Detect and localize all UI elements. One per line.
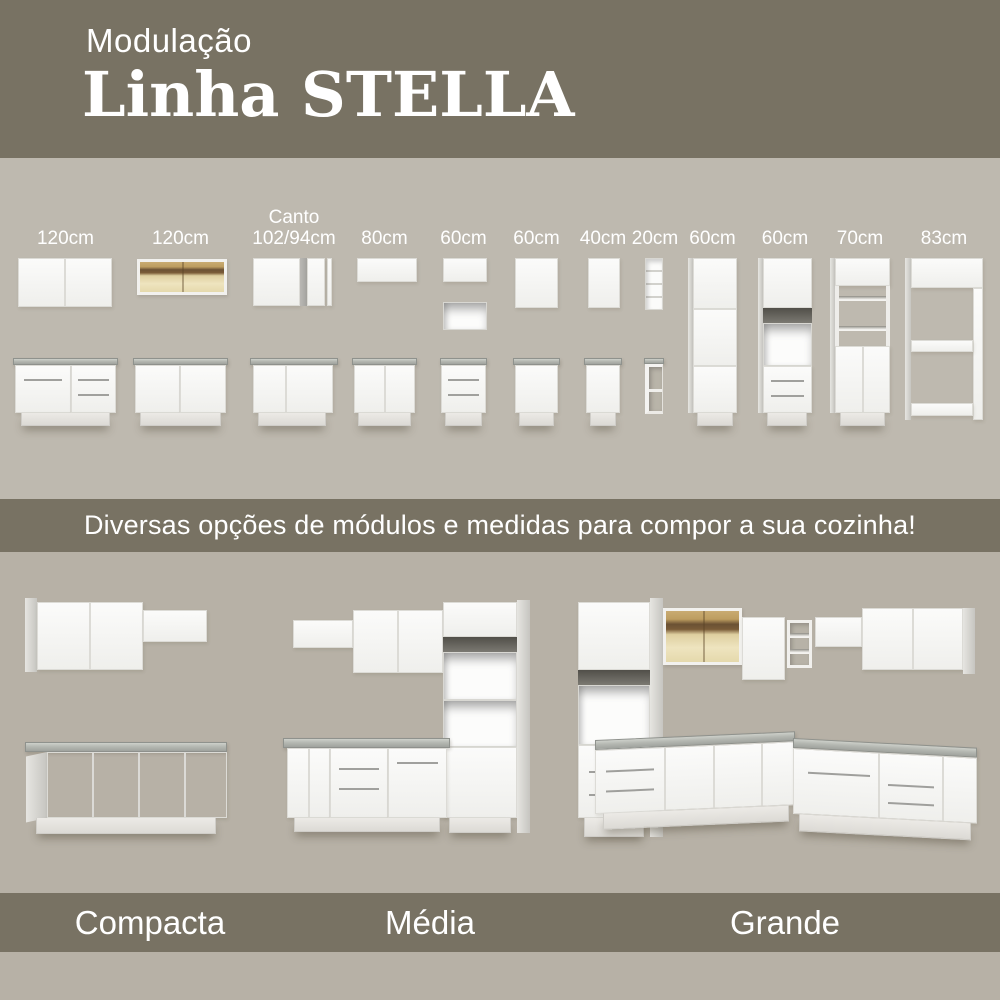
- module-size-label: 83cm: [921, 228, 967, 249]
- filler-strip: [327, 258, 332, 306]
- open-shelf-unit: [787, 620, 812, 668]
- poster: Modulação Linha STELLA 120cm 120cm Canto: [0, 0, 1000, 1000]
- drawer-handle: [808, 772, 870, 777]
- module-size-label: 70cm: [837, 228, 883, 249]
- module-size-label: 120cm: [152, 228, 209, 249]
- wall-cabinet: [862, 608, 963, 670]
- base-run-right: [793, 738, 977, 858]
- plinth: [767, 413, 807, 426]
- module-size-label: 60cm: [689, 228, 735, 249]
- corner-wall-door: [253, 258, 300, 306]
- shelf: [911, 340, 973, 352]
- shelf: [839, 296, 886, 301]
- base-cabinets: [595, 741, 795, 814]
- module-column-120-1: 120cm: [13, 158, 118, 499]
- kitchen-label-compacta: Compacta: [50, 904, 250, 942]
- door-handle: [888, 784, 934, 788]
- appliance-slot: [578, 670, 650, 685]
- plinth: [358, 413, 411, 426]
- shelf: [790, 633, 809, 638]
- base-drawers: [71, 365, 116, 413]
- glass-wall-cabinet: [137, 259, 227, 295]
- plinth: [258, 413, 326, 426]
- countertop: [440, 358, 487, 365]
- module-column-60-niche: 60cm: [440, 158, 487, 499]
- tall-door: [693, 366, 737, 413]
- corner-return-panel: [307, 258, 325, 306]
- base-doors: [835, 346, 890, 413]
- plinth: [21, 413, 110, 426]
- open-end-shelf: [645, 364, 663, 414]
- base-cabinet: [354, 365, 415, 413]
- plinth: [445, 413, 482, 426]
- base-door: [15, 365, 71, 413]
- open-niche: [763, 323, 812, 366]
- appliance-slot: [763, 308, 812, 323]
- kitchen-labels-band: Compacta Média Grande: [0, 893, 1000, 952]
- base-cabinets: [793, 748, 977, 824]
- door-seam: [878, 753, 880, 817]
- base-door: [586, 365, 620, 413]
- shelf: [790, 649, 809, 654]
- door-seam: [713, 746, 715, 808]
- module-column-80: 80cm: [352, 158, 417, 499]
- drawer-handle: [606, 768, 654, 772]
- glass-wall-cabinet: [663, 608, 742, 665]
- shelf: [839, 326, 886, 331]
- banner: Diversas opções de módulos e medidas par…: [0, 499, 1000, 552]
- top-panel: [835, 258, 890, 286]
- module-size-label: 20cm: [632, 228, 678, 249]
- header-kicker: Modulação: [86, 22, 252, 60]
- shelf: [911, 403, 973, 416]
- side-panel: [963, 608, 975, 674]
- base-door: [135, 365, 180, 413]
- wall-cabinet: [588, 258, 620, 308]
- module-size-label: 60cm: [513, 228, 559, 249]
- base-door: [515, 365, 558, 413]
- module-column-60b: 60cm: [513, 158, 560, 499]
- open-niche: [578, 685, 650, 745]
- module-size-label: 40cm: [580, 228, 626, 249]
- corner-return-shadow: [300, 258, 307, 306]
- banner-text: Diversas opções de módulos e medidas par…: [84, 510, 916, 541]
- wall-cabinet: [357, 258, 417, 282]
- top-panel: [911, 258, 983, 288]
- plinth: [590, 413, 616, 426]
- countertop: [584, 358, 622, 365]
- side-panel: [973, 288, 983, 420]
- open-shelf-area: [835, 286, 890, 346]
- tall-door: [693, 309, 737, 366]
- page-title: Linha STELLA: [82, 58, 575, 131]
- countertop: [13, 358, 118, 365]
- module-column-oven-tower: 60cm: [758, 158, 812, 499]
- door-handle: [888, 802, 934, 806]
- kitchen-label-media: Média: [330, 904, 530, 942]
- header: Modulação Linha STELLA: [0, 0, 1000, 158]
- module-size-label: 60cm: [762, 228, 808, 249]
- module-column-120-glass: 120cm: [133, 158, 228, 499]
- base-run-left: [595, 731, 795, 844]
- base-door: [180, 365, 226, 413]
- wall-cabinet: [815, 617, 862, 647]
- open-shelf-tower: [645, 258, 663, 310]
- open-niche: [443, 302, 487, 330]
- kitchens-section: Compacta Média Grande: [0, 552, 1000, 1000]
- module-column-83: 83cm: [905, 158, 983, 499]
- module-column-corner: Canto 102/94cm: [250, 158, 338, 499]
- module-size-label: 60cm: [440, 228, 486, 249]
- wall-cabinet: [18, 258, 112, 307]
- door-seam: [761, 744, 763, 806]
- corner-base-cabinet: [253, 365, 333, 413]
- door-seam: [664, 748, 666, 810]
- module-column-tall-60: 60cm: [688, 158, 737, 499]
- plinth: [840, 413, 885, 426]
- modules-section: 120cm 120cm Canto 102/94cm: [0, 158, 1000, 499]
- module-size-label: Canto 102/94cm: [252, 207, 335, 249]
- module-column-70: 70cm: [830, 158, 890, 499]
- wall-cabinet: [742, 617, 785, 680]
- plinth: [697, 413, 733, 426]
- kitchen-label-grande: Grande: [685, 904, 885, 942]
- countertop: [250, 358, 338, 365]
- countertop: [352, 358, 417, 365]
- wall-cabinet: [443, 258, 487, 282]
- module-column-40: 40cm: [584, 158, 622, 499]
- plinth: [519, 413, 554, 426]
- tall-door: [763, 258, 812, 308]
- drawer-handle: [606, 788, 654, 792]
- module-size-label: 120cm: [37, 228, 94, 249]
- door-seam: [942, 757, 944, 821]
- module-column-20: 20cm: [645, 158, 665, 499]
- wall-cabinet: [515, 258, 558, 308]
- base-drawers: [763, 366, 812, 413]
- base-drawers: [441, 365, 486, 413]
- module-size-label: 80cm: [361, 228, 407, 249]
- countertop: [513, 358, 560, 365]
- tower-door: [578, 602, 650, 670]
- plinth: [140, 413, 221, 426]
- countertop: [133, 358, 228, 365]
- tall-door: [693, 258, 737, 309]
